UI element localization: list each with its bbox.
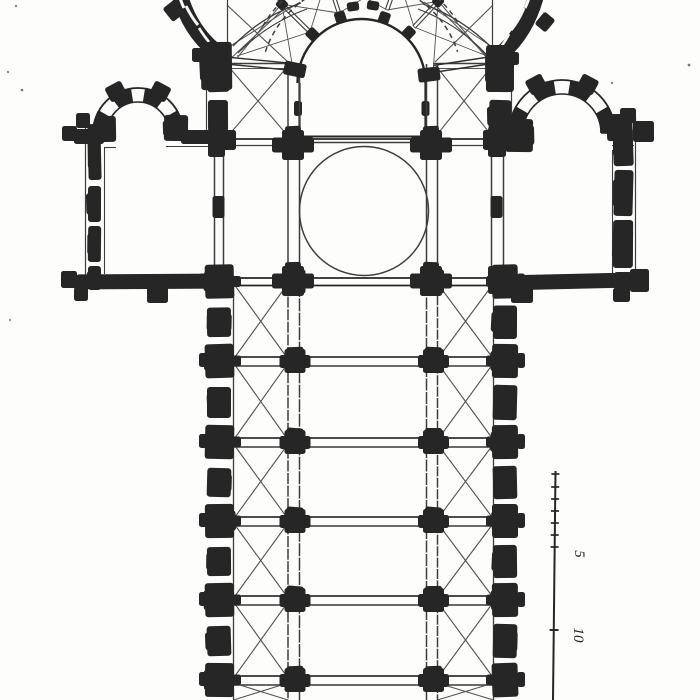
svg-text:5: 5 [571, 550, 587, 558]
svg-text:10: 10 [570, 628, 586, 644]
